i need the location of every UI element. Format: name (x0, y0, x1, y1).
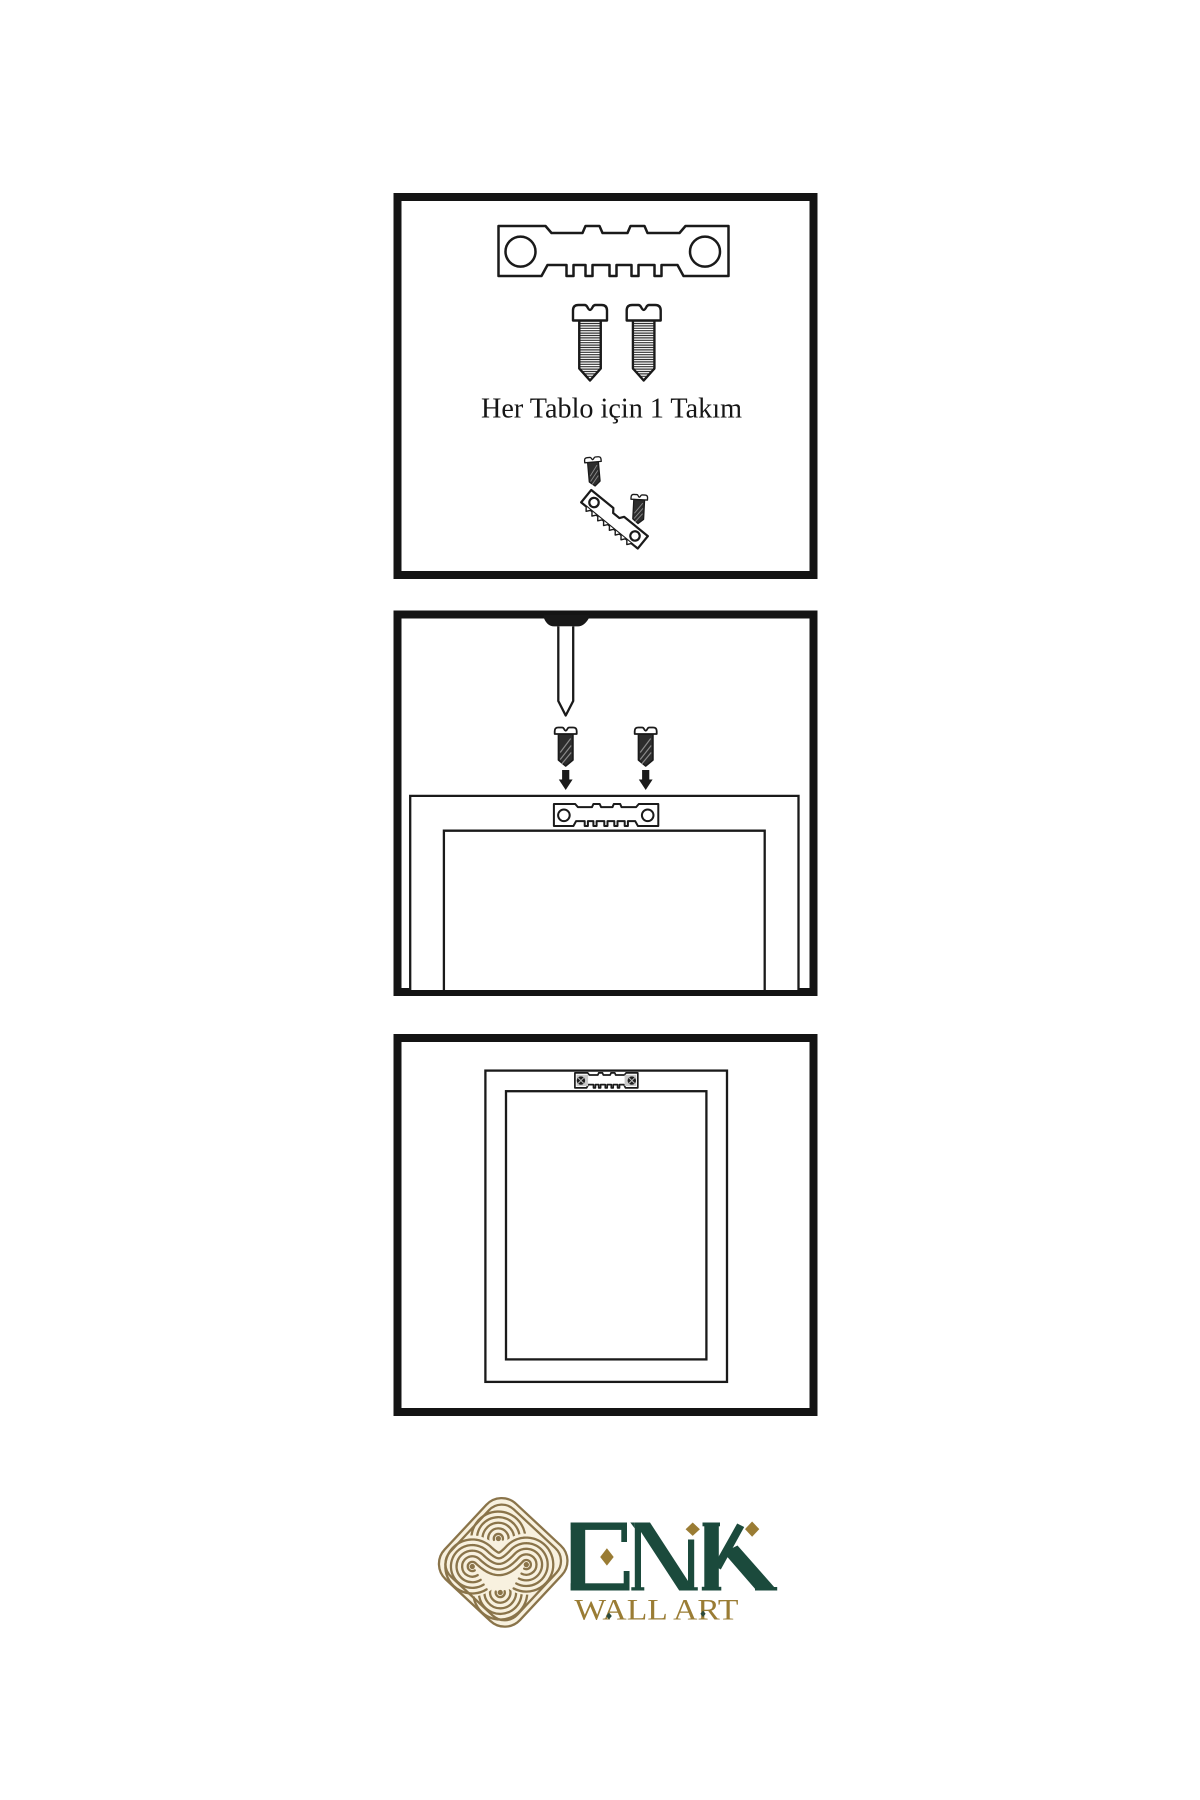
svg-text:WALL ART: WALL ART (574, 1595, 738, 1627)
svg-text:Her Tablo için 1 Takım: Her Tablo için 1 Takım (481, 393, 742, 425)
